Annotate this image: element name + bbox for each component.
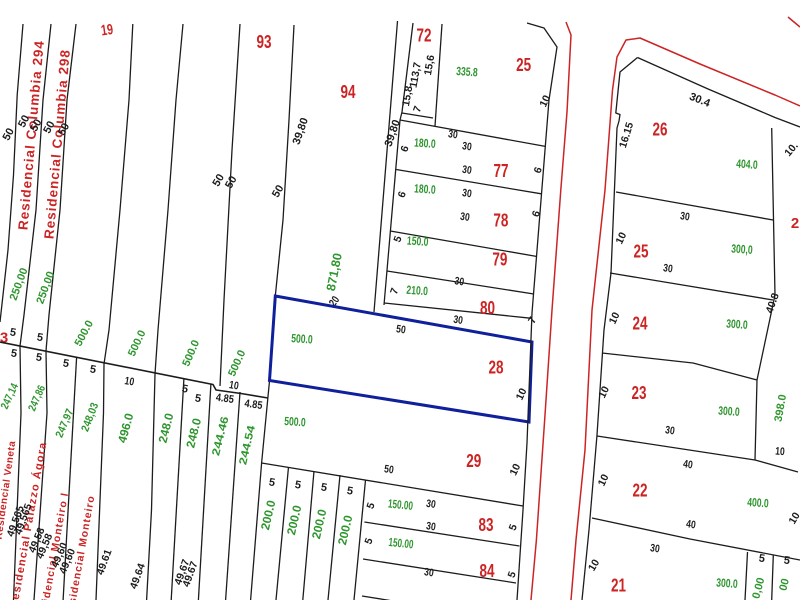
svg-text:500.0: 500.0 bbox=[291, 331, 314, 346]
svg-text:26: 26 bbox=[653, 119, 668, 139]
svg-text:22: 22 bbox=[633, 480, 648, 500]
svg-text:21: 21 bbox=[611, 575, 626, 595]
svg-text:150.00: 150.00 bbox=[388, 535, 415, 552]
svg-text:335.8: 335.8 bbox=[456, 64, 479, 79]
svg-text:19: 19 bbox=[100, 21, 114, 40]
svg-text:2: 2 bbox=[791, 215, 799, 232]
svg-text:210.0: 210.0 bbox=[406, 283, 429, 298]
svg-text:30: 30 bbox=[649, 542, 660, 555]
svg-text:30: 30 bbox=[662, 262, 673, 275]
svg-text:4.85: 4.85 bbox=[244, 398, 263, 412]
svg-text:300.0: 300.0 bbox=[718, 403, 741, 418]
svg-text:25: 25 bbox=[516, 55, 531, 75]
svg-text:50: 50 bbox=[383, 463, 394, 476]
svg-text:4.85: 4.85 bbox=[215, 392, 234, 406]
svg-text:30: 30 bbox=[423, 566, 434, 579]
svg-text:400.0: 400.0 bbox=[747, 495, 770, 510]
svg-text:28: 28 bbox=[489, 357, 504, 377]
svg-text:180.0: 180.0 bbox=[414, 181, 437, 196]
svg-text:30: 30 bbox=[447, 128, 458, 141]
svg-text:40: 40 bbox=[682, 458, 693, 471]
svg-text:300.0: 300.0 bbox=[726, 316, 749, 331]
svg-text:94: 94 bbox=[341, 82, 356, 102]
svg-text:25: 25 bbox=[634, 241, 649, 261]
svg-text:29: 29 bbox=[466, 451, 481, 471]
svg-text:404.0: 404.0 bbox=[736, 156, 759, 171]
svg-text:50: 50 bbox=[395, 323, 406, 336]
svg-text:23: 23 bbox=[632, 383, 647, 403]
svg-text:10: 10 bbox=[775, 446, 785, 459]
svg-text:79: 79 bbox=[492, 250, 507, 270]
svg-text:300.0: 300.0 bbox=[716, 575, 739, 590]
svg-text:78: 78 bbox=[493, 210, 508, 230]
svg-text:30: 30 bbox=[425, 498, 436, 511]
svg-text:80: 80 bbox=[480, 298, 495, 318]
svg-text:30: 30 bbox=[453, 314, 464, 327]
svg-text:30: 30 bbox=[461, 187, 472, 200]
svg-text:30: 30 bbox=[425, 520, 436, 533]
svg-text:30: 30 bbox=[461, 140, 472, 153]
svg-text:77: 77 bbox=[494, 161, 509, 181]
svg-text:150.0: 150.0 bbox=[406, 233, 429, 248]
svg-text:500.0: 500.0 bbox=[284, 414, 307, 429]
svg-text:30: 30 bbox=[679, 210, 690, 223]
svg-text:24: 24 bbox=[633, 313, 648, 333]
svg-text:30: 30 bbox=[454, 275, 465, 288]
svg-text:72: 72 bbox=[417, 25, 432, 45]
svg-text:180.0: 180.0 bbox=[414, 135, 437, 150]
svg-text:40: 40 bbox=[685, 518, 696, 531]
svg-text:84: 84 bbox=[480, 561, 495, 581]
svg-text:30: 30 bbox=[461, 164, 472, 177]
svg-text:30: 30 bbox=[459, 211, 470, 224]
svg-text:93: 93 bbox=[257, 32, 272, 52]
svg-text:300,0: 300,0 bbox=[731, 241, 754, 256]
svg-text:83: 83 bbox=[479, 515, 494, 535]
svg-text:30: 30 bbox=[664, 424, 675, 437]
svg-text:150.00: 150.00 bbox=[387, 496, 414, 513]
